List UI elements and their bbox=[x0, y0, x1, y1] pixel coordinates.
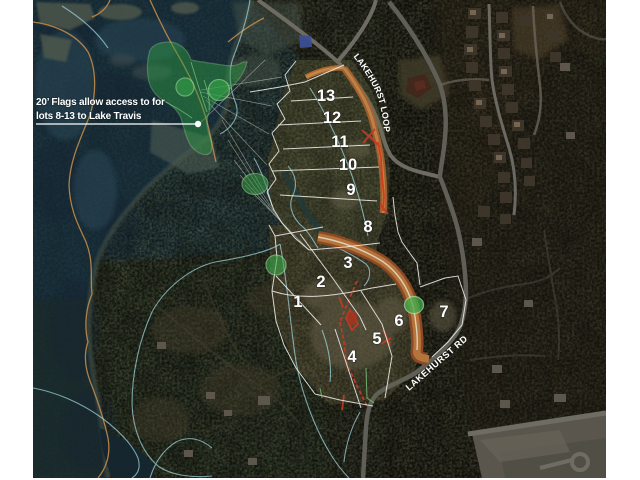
svg-text:5: 5 bbox=[372, 330, 381, 348]
svg-text:2: 2 bbox=[316, 273, 325, 291]
svg-text:lots 8-13 to Lake Travis: lots 8-13 to Lake Travis bbox=[36, 111, 142, 122]
svg-text:6: 6 bbox=[394, 312, 403, 330]
svg-text:20’ Flags allow access to for: 20’ Flags allow access to for bbox=[36, 97, 165, 108]
svg-text:13: 13 bbox=[317, 87, 335, 105]
svg-text:9: 9 bbox=[346, 181, 355, 199]
svg-text:12: 12 bbox=[323, 109, 341, 127]
svg-text:4: 4 bbox=[347, 348, 357, 366]
svg-text:7: 7 bbox=[439, 303, 448, 321]
svg-text:10: 10 bbox=[339, 156, 357, 174]
svg-text:3: 3 bbox=[343, 254, 352, 272]
svg-text:11: 11 bbox=[331, 133, 348, 151]
svg-text:1: 1 bbox=[293, 293, 302, 311]
svg-text:8: 8 bbox=[363, 218, 372, 236]
